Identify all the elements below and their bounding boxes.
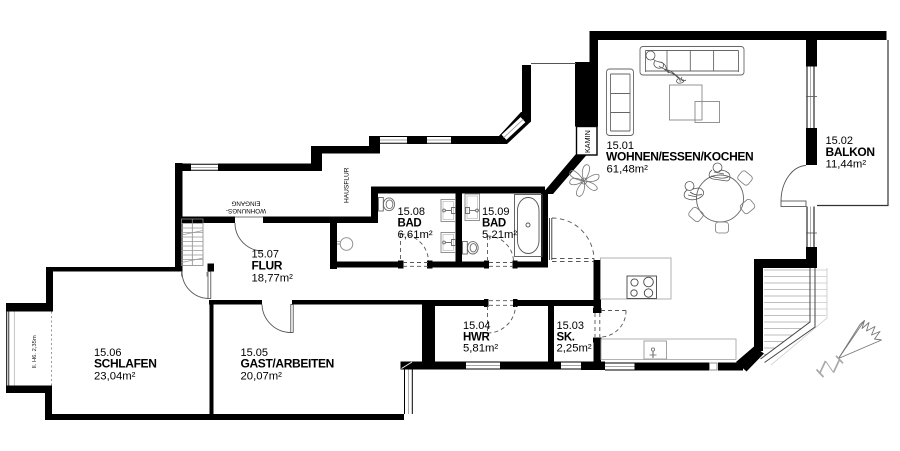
svg-text:15.03: 15.03 [557, 320, 585, 332]
svg-text:EINGANG: EINGANG [231, 200, 260, 207]
svg-text:15.09: 15.09 [482, 206, 510, 218]
svg-text:SK.: SK. [557, 331, 575, 343]
svg-text:BAD: BAD [398, 218, 422, 230]
svg-text:II. H6. 2,35m: II. H6. 2,35m [32, 335, 38, 368]
svg-text:FLUR: FLUR [252, 259, 283, 273]
svg-text:HWR: HWR [463, 331, 490, 343]
svg-text:HAUSFLUR: HAUSFLUR [344, 167, 351, 203]
svg-text:SCHLAFEN: SCHLAFEN [94, 357, 157, 371]
svg-text:5,21m²: 5,21m² [482, 229, 517, 241]
svg-text:61,48m²: 61,48m² [607, 164, 649, 176]
svg-text:WOHNUNGS-: WOHNUNGS- [226, 207, 266, 214]
svg-text:20,07m²: 20,07m² [241, 370, 283, 382]
svg-text:BAD: BAD [482, 218, 506, 230]
svg-text:5,81m²: 5,81m² [463, 343, 498, 355]
svg-text:GAST/ARBEITEN: GAST/ARBEITEN [241, 357, 334, 371]
svg-text:WOHNEN/ESSEN/KOCHEN: WOHNEN/ESSEN/KOCHEN [606, 150, 753, 164]
svg-text:18,77m²: 18,77m² [252, 272, 294, 284]
svg-text:23,04m²: 23,04m² [94, 370, 136, 382]
svg-text:BALKON: BALKON [826, 145, 875, 159]
svg-text:2,25m²: 2,25m² [557, 343, 592, 355]
svg-text:15.04: 15.04 [463, 320, 491, 332]
svg-text:11,44m²: 11,44m² [826, 159, 867, 171]
svg-text:15.08: 15.08 [398, 206, 426, 218]
svg-text:KAMIN: KAMIN [583, 130, 592, 153]
svg-text:6,61m²: 6,61m² [398, 229, 433, 241]
